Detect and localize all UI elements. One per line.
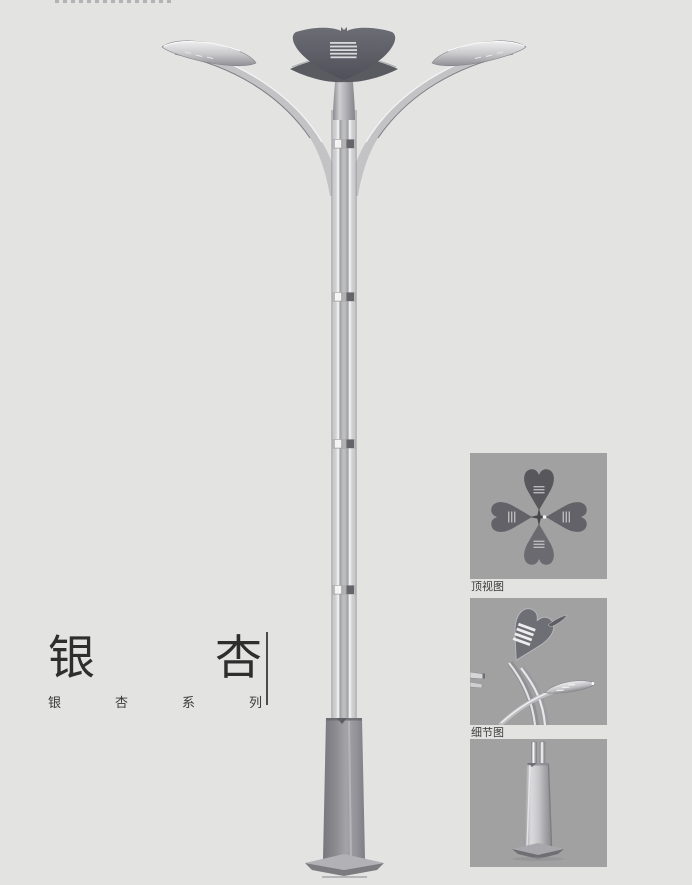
subtitle-char: 杏: [115, 692, 128, 711]
detail-view-panel: [470, 598, 607, 725]
series-subtitle: 银 杏 系 列: [48, 692, 262, 711]
series-title: 银 杏: [48, 634, 262, 681]
pole-band: [332, 292, 357, 302]
subtitle-char: 系: [182, 692, 195, 711]
subtitle-char: 银: [48, 692, 61, 711]
top-view-label: 顶视图: [471, 581, 504, 594]
series-title-block: 银 杏 银 杏 系 列: [48, 634, 262, 711]
pole-band: [332, 585, 357, 595]
lamp-crown: [290, 27, 398, 120]
title-divider-line: [266, 632, 268, 705]
lamp-base: [305, 718, 384, 878]
base-view-panel: [470, 739, 607, 867]
top-view-panel: [470, 453, 607, 579]
pole-band: [332, 139, 357, 149]
subtitle-char: 列: [249, 692, 262, 711]
lamp-head-left: [162, 41, 256, 66]
lamp-head-right: [432, 41, 526, 66]
lamp-pole: [332, 110, 357, 718]
page: { "title_block": { "title_chars": ["银", …: [0, 0, 692, 885]
lamp-head-detail-figure: [470, 598, 607, 725]
pole-band: [332, 439, 357, 449]
title-char: 杏: [215, 634, 262, 681]
title-char: 银: [48, 634, 95, 681]
lamp-top-view-figure: [470, 453, 607, 579]
lamp-base-figure: [470, 739, 607, 867]
